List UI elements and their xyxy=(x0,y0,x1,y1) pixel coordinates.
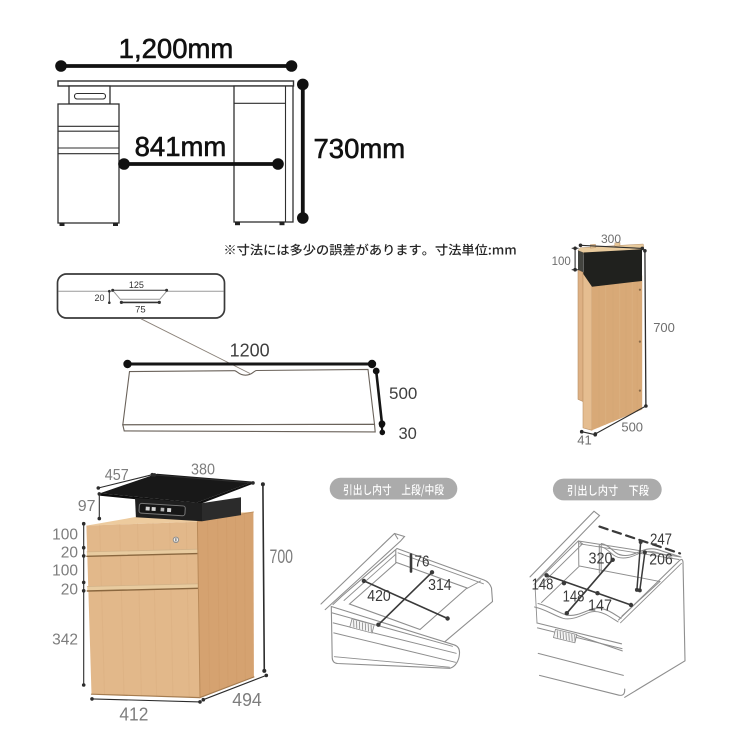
svg-text:457: 457 xyxy=(105,467,129,484)
svg-text:500: 500 xyxy=(389,384,417,403)
svg-text:841mm: 841mm xyxy=(135,131,227,162)
svg-text:20: 20 xyxy=(61,582,79,599)
svg-text:41: 41 xyxy=(577,432,591,447)
svg-text:97: 97 xyxy=(78,498,96,515)
svg-text:125: 125 xyxy=(129,280,144,290)
svg-text:380: 380 xyxy=(191,462,215,479)
svg-text:320: 320 xyxy=(589,551,613,568)
svg-text:494: 494 xyxy=(232,689,262,710)
svg-text:300: 300 xyxy=(601,232,621,246)
svg-text:75: 75 xyxy=(135,305,146,316)
svg-text:730mm: 730mm xyxy=(314,133,406,164)
svg-text:147: 147 xyxy=(588,598,612,615)
svg-text:20: 20 xyxy=(61,545,79,562)
svg-text:1200: 1200 xyxy=(230,341,270,361)
svg-text:206: 206 xyxy=(649,552,673,569)
svg-text:100: 100 xyxy=(52,563,78,580)
svg-text:100: 100 xyxy=(52,527,78,544)
svg-text:247: 247 xyxy=(650,532,672,549)
svg-text:342: 342 xyxy=(52,632,78,649)
svg-text:1,200mm: 1,200mm xyxy=(119,33,234,64)
svg-text:700: 700 xyxy=(270,547,294,568)
svg-text:76: 76 xyxy=(415,554,430,571)
svg-text:30: 30 xyxy=(399,425,417,443)
svg-text:148: 148 xyxy=(532,577,554,594)
svg-text:500: 500 xyxy=(621,420,643,435)
svg-text:314: 314 xyxy=(428,577,452,594)
svg-text:420: 420 xyxy=(367,588,391,605)
svg-text:412: 412 xyxy=(119,705,148,725)
svg-text:148: 148 xyxy=(563,589,585,606)
svg-text:700: 700 xyxy=(653,320,675,335)
svg-text:100: 100 xyxy=(552,256,571,268)
svg-text:20: 20 xyxy=(94,293,104,303)
